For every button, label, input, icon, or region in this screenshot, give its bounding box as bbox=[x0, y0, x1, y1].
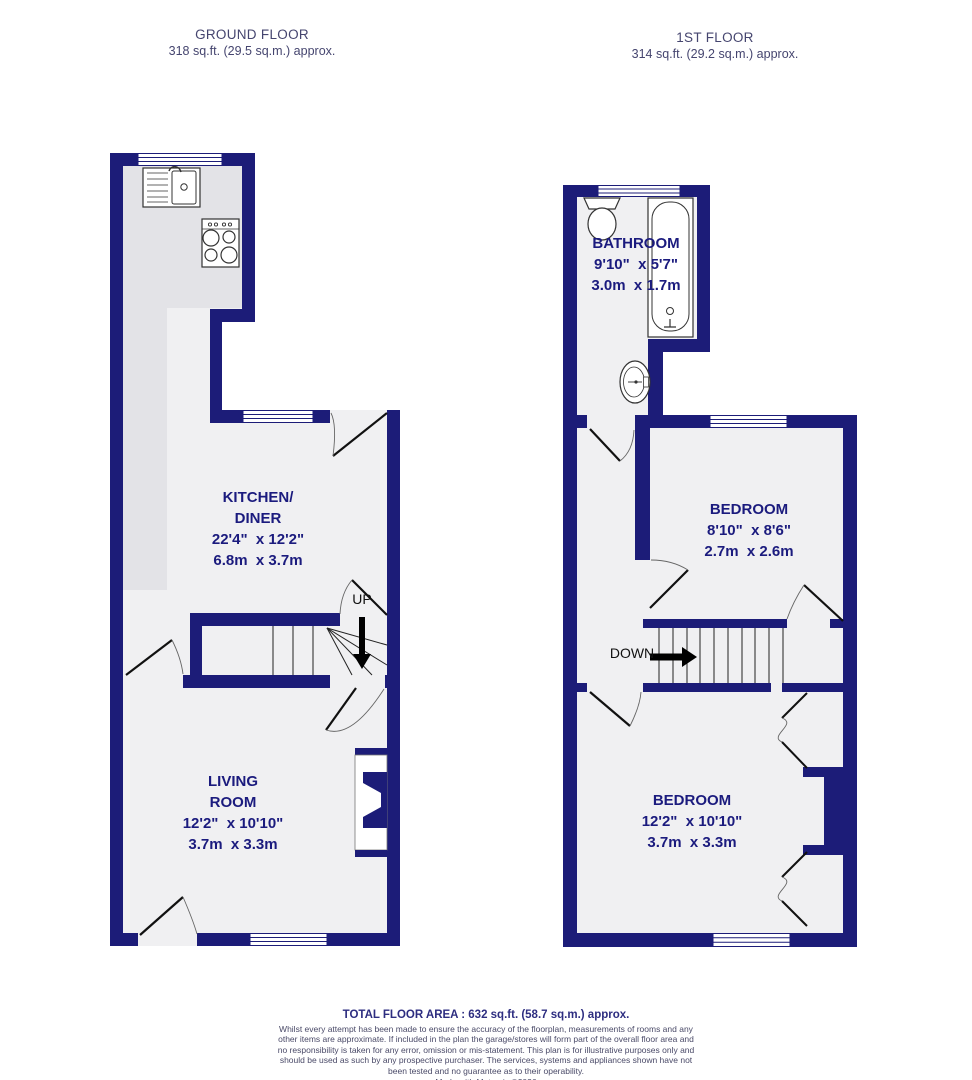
bedroom1-label: BEDROOM 8'10" x 8'6" 2.7m x 2.6m bbox=[639, 499, 859, 562]
floor-area: 318 sq.ft. (29.5 sq.m.) approx. bbox=[107, 43, 397, 59]
floorplan-page: GROUND FLOOR 318 sq.ft. (29.5 sq.m.) app… bbox=[0, 0, 972, 1080]
room-name: KITCHEN/ bbox=[148, 487, 368, 508]
wash-basin bbox=[620, 361, 650, 403]
room-size-imperial: 12'2" x 10'10" bbox=[582, 811, 802, 832]
room-size-imperial: 12'2" x 10'10" bbox=[123, 813, 343, 834]
kitchen-diner-label: KITCHEN/ DINER 22'4" x 12'2" 6.8m x 3.7m bbox=[148, 487, 368, 571]
room-name: LIVING bbox=[123, 771, 343, 792]
room-name: ROOM bbox=[123, 792, 343, 813]
kitchen-window bbox=[138, 154, 222, 166]
total-floor-area: TOTAL FLOOR AREA : 632 sq.ft. (58.7 sq.m… bbox=[275, 1009, 697, 1021]
room-name: DINER bbox=[148, 508, 368, 529]
first-floor-header: 1ST FLOOR 314 sq.ft. (29.2 sq.m.) approx… bbox=[570, 29, 860, 62]
floor-title: 1ST FLOOR bbox=[570, 29, 860, 46]
room-name: BEDROOM bbox=[582, 790, 802, 811]
bedroom2-label: BEDROOM 12'2" x 10'10" 3.7m x 3.3m bbox=[582, 790, 802, 853]
room-size-metric: 6.8m x 3.7m bbox=[148, 550, 368, 571]
bathroom-window bbox=[598, 186, 680, 197]
diner-window bbox=[243, 411, 313, 423]
room-size-metric: 2.7m x 2.6m bbox=[639, 541, 859, 562]
bathroom-label: BATHROOM 9'10" x 5'7" 3.0m x 1.7m bbox=[526, 233, 746, 296]
bedroom2-window bbox=[713, 934, 790, 947]
kitchen-sink bbox=[143, 167, 200, 207]
room-size-imperial: 8'10" x 8'6" bbox=[639, 520, 859, 541]
living-room-window bbox=[250, 934, 327, 946]
stove-hob bbox=[202, 219, 239, 267]
room-name: BATHROOM bbox=[526, 233, 746, 254]
disclaimer-text: Whilst every attempt has been made to en… bbox=[273, 1024, 699, 1076]
floor-area: 314 sq.ft. (29.2 sq.m.) approx. bbox=[570, 46, 860, 62]
living-room-chimney-breast bbox=[355, 748, 387, 857]
living-room-label: LIVING ROOM 12'2" x 10'10" 3.7m x 3.3m bbox=[123, 771, 343, 855]
room-size-metric: 3.7m x 3.3m bbox=[582, 832, 802, 853]
room-size-metric: 3.0m x 1.7m bbox=[526, 275, 746, 296]
stairs-down-label: DOWN bbox=[592, 645, 672, 661]
ground-floor-header: GROUND FLOOR 318 sq.ft. (29.5 sq.m.) app… bbox=[107, 26, 397, 59]
bedroom1-window bbox=[710, 416, 787, 428]
floor-title: GROUND FLOOR bbox=[107, 26, 397, 43]
room-name: BEDROOM bbox=[639, 499, 859, 520]
disclaimer: Whilst every attempt has been made to en… bbox=[273, 1024, 699, 1080]
stairs-up-label: UP bbox=[342, 591, 382, 607]
room-size-metric: 3.7m x 3.3m bbox=[123, 834, 343, 855]
room-size-imperial: 22'4" x 12'2" bbox=[148, 529, 368, 550]
room-size-imperial: 9'10" x 5'7" bbox=[526, 254, 746, 275]
